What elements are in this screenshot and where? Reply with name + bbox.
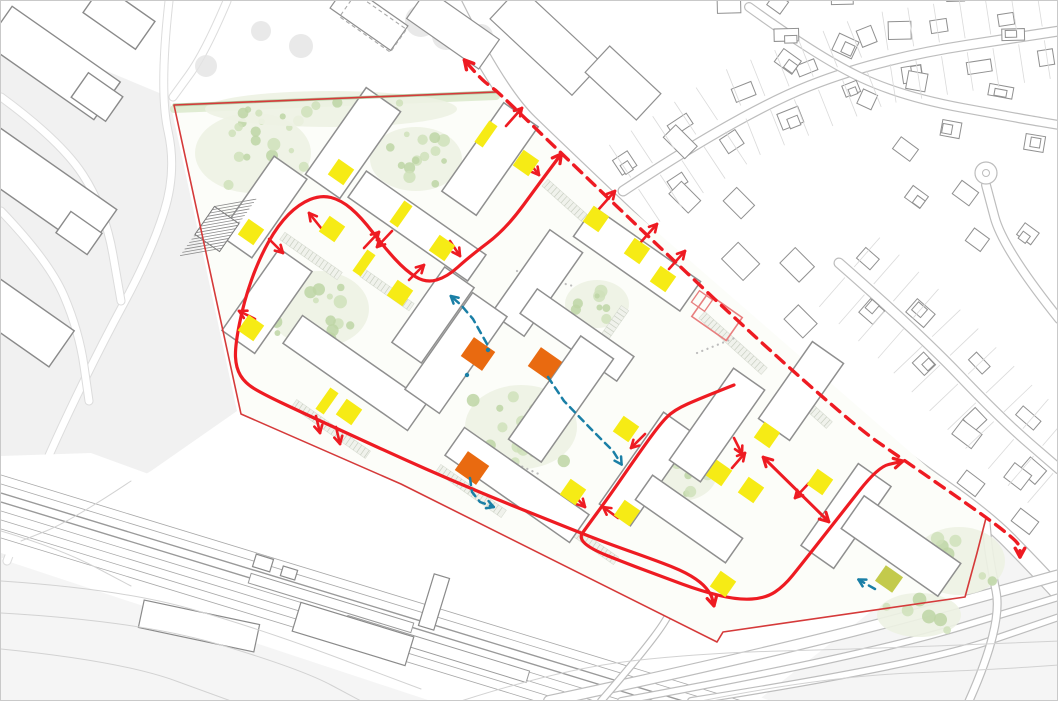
- pedestrian-link-dot: [486, 348, 490, 352]
- pedestrian-link-dot: [465, 373, 469, 377]
- tree: [234, 152, 244, 162]
- context-house: [997, 12, 1014, 26]
- context-house: [888, 21, 911, 39]
- context-house: [952, 180, 978, 205]
- tree: [602, 304, 610, 312]
- tree: [301, 106, 313, 118]
- context-house: [1016, 406, 1041, 430]
- tree: [228, 129, 236, 137]
- tree: [467, 394, 480, 407]
- tree: [346, 321, 354, 329]
- tree: [412, 157, 419, 164]
- tree: [595, 293, 600, 298]
- context-building: [83, 1, 155, 49]
- context-house: [856, 25, 877, 47]
- tree: [685, 486, 696, 497]
- tree: [403, 171, 415, 183]
- tree: [883, 603, 891, 611]
- context-house: [1011, 508, 1039, 534]
- tree: [251, 127, 261, 137]
- tree: [398, 162, 405, 169]
- tree: [238, 108, 249, 119]
- context-house: [1005, 30, 1016, 37]
- context-house: [893, 137, 919, 161]
- map-canvas: [0, 0, 1058, 701]
- context-house: [1030, 137, 1041, 148]
- park-tree: [195, 55, 217, 77]
- tree: [223, 180, 233, 190]
- context-house: [930, 18, 948, 33]
- tree: [497, 422, 507, 432]
- tree: [337, 284, 344, 291]
- context-house: [663, 125, 697, 159]
- tree: [386, 143, 395, 152]
- tree: [558, 455, 570, 467]
- tree: [234, 123, 243, 132]
- tree: [431, 180, 439, 188]
- tree: [267, 138, 280, 151]
- tree: [596, 304, 602, 310]
- tree: [274, 330, 280, 336]
- tree: [430, 146, 440, 156]
- tree: [441, 158, 447, 164]
- tree: [420, 152, 429, 161]
- park-tree: [251, 21, 271, 41]
- context-house: [831, 1, 853, 5]
- tree: [404, 131, 410, 137]
- tree: [327, 293, 333, 299]
- context-house: [767, 1, 789, 14]
- tree: [311, 101, 320, 110]
- context-house: [717, 1, 741, 13]
- context-house: [994, 88, 1007, 97]
- tree: [251, 135, 261, 145]
- context-house: [780, 248, 815, 283]
- context-building: [585, 46, 661, 120]
- tree: [243, 154, 250, 161]
- tree: [934, 613, 947, 626]
- tree: [496, 405, 503, 412]
- tree: [979, 572, 987, 580]
- tree: [334, 295, 347, 308]
- context-house: [723, 187, 754, 218]
- context-house: [906, 71, 928, 92]
- tree: [396, 99, 403, 106]
- tree: [988, 576, 998, 586]
- context-house: [785, 35, 797, 43]
- tree: [417, 134, 427, 144]
- tree: [922, 610, 936, 624]
- tree: [289, 148, 294, 153]
- context-house: [965, 228, 989, 251]
- tree: [280, 113, 286, 119]
- tree: [949, 535, 961, 547]
- tree: [508, 391, 519, 402]
- context-house: [942, 123, 953, 134]
- park-tree: [289, 34, 313, 58]
- tree: [304, 286, 316, 298]
- site-plan-map: [1, 1, 1058, 701]
- tree: [255, 110, 262, 117]
- tree: [325, 315, 336, 326]
- context-house: [1017, 223, 1040, 245]
- tree: [943, 626, 951, 634]
- context-house: [784, 305, 817, 338]
- tree: [429, 132, 440, 143]
- context-house: [722, 242, 760, 280]
- tree: [313, 297, 319, 303]
